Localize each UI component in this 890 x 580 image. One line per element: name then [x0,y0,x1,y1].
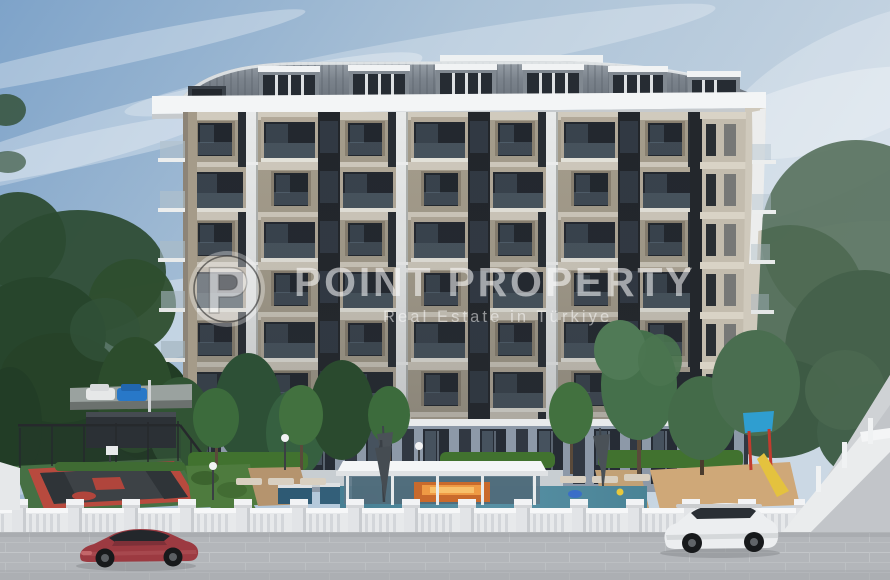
svg-text:P: P [205,253,249,327]
svg-text:Real Estate in Türkiye: Real Estate in Türkiye [383,308,612,326]
svg-text:POINT PROPERTY: POINT PROPERTY [294,259,695,305]
